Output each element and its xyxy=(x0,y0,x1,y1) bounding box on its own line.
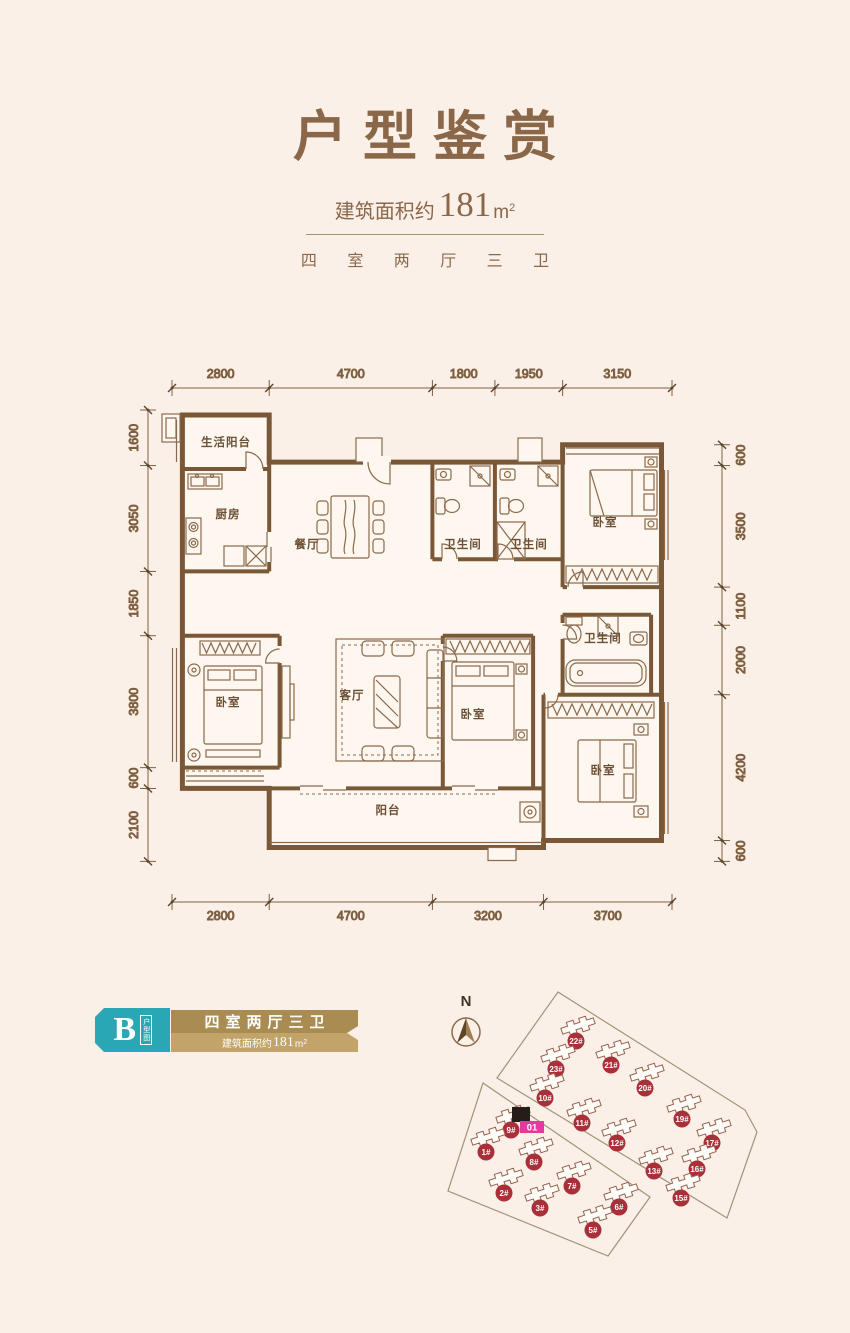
siteplan: N 22#21#23#20#10#11#19#12#17#9#1#8#13#16… xyxy=(430,980,850,1280)
svg-text:4700: 4700 xyxy=(337,367,365,381)
compass-arrow-dark-icon xyxy=(457,1018,466,1043)
svg-text:10#: 10# xyxy=(538,1094,552,1103)
svg-text:600: 600 xyxy=(734,840,748,861)
building-marker: 11# xyxy=(566,1096,603,1131)
svg-text:1950: 1950 xyxy=(515,367,543,381)
svg-text:19#: 19# xyxy=(675,1115,689,1124)
svg-text:卫生间: 卫生间 xyxy=(584,631,622,645)
svg-text:厨房: 厨房 xyxy=(216,507,241,521)
svg-text:1#: 1# xyxy=(482,1148,491,1157)
svg-text:16#: 16# xyxy=(690,1165,704,1174)
svg-text:6#: 6# xyxy=(615,1203,624,1212)
unit-sub-value: 181 xyxy=(273,1036,294,1050)
area-value: 181 xyxy=(439,187,492,222)
page-title: 户型鉴赏 xyxy=(0,0,850,171)
building-marker: 7# xyxy=(556,1159,593,1194)
svg-text:2000: 2000 xyxy=(734,646,748,674)
building-marker: 21# xyxy=(595,1038,632,1073)
svg-text:2100: 2100 xyxy=(127,811,141,839)
svg-text:餐厅: 餐厅 xyxy=(294,537,320,551)
area-unit: m xyxy=(493,203,509,222)
svg-text:卧室: 卧室 xyxy=(591,763,616,777)
unit-sub-unit: m xyxy=(295,1040,303,1050)
layout-text: 四 室 两 厅 三 卫 xyxy=(0,247,850,271)
svg-text:11#: 11# xyxy=(576,1119,589,1128)
svg-text:3150: 3150 xyxy=(603,367,631,381)
svg-text:客厅: 客厅 xyxy=(339,688,365,702)
unit-sub-prefix: 建筑面积约 xyxy=(222,1040,272,1050)
unit-banner: 四室两厅三卫 建筑面积约181m2 xyxy=(171,1010,358,1052)
building-marker: 15# xyxy=(665,1171,702,1206)
svg-text:卧室: 卧室 xyxy=(461,707,486,721)
svg-text:20#: 20# xyxy=(638,1084,652,1093)
unit-tag-vertical: 户型图 xyxy=(140,1015,152,1045)
svg-text:12#: 12# xyxy=(610,1139,624,1148)
building-marker: 8# xyxy=(518,1135,555,1170)
svg-text:3800: 3800 xyxy=(127,688,141,716)
svg-text:1100: 1100 xyxy=(734,593,748,620)
building-marker: 19# xyxy=(666,1092,703,1127)
svg-text:600: 600 xyxy=(127,768,141,789)
compass-arrow-light-icon xyxy=(466,1018,475,1043)
svg-text:9#: 9# xyxy=(507,1126,516,1135)
svg-text:阳台: 阳台 xyxy=(376,803,401,817)
svg-text:15#: 15# xyxy=(674,1194,688,1203)
building-marker: 1# xyxy=(470,1125,507,1160)
building-marker: 16# xyxy=(681,1142,718,1177)
north-label: N xyxy=(461,993,472,1010)
unit-sub-sup: 2 xyxy=(303,1039,307,1046)
building-marker: 20# xyxy=(629,1061,666,1096)
svg-text:23#: 23# xyxy=(549,1065,563,1074)
compass: N xyxy=(452,993,480,1046)
unit-badge: B 户型图 四室两厅三卫 建筑面积约181m2 xyxy=(95,1008,375,1072)
svg-text:4200: 4200 xyxy=(734,754,748,782)
svg-text:3200: 3200 xyxy=(474,909,502,923)
banner-notch-icon xyxy=(347,1026,358,1040)
unit-banner-sub: 建筑面积约181m2 xyxy=(171,1033,358,1052)
svg-text:3#: 3# xyxy=(536,1204,545,1213)
building-marker: 3# xyxy=(524,1181,561,1216)
svg-text:卫生间: 卫生间 xyxy=(510,537,548,551)
svg-text:21#: 21# xyxy=(604,1061,618,1070)
header: 户型鉴赏 建筑面积约181m2 四 室 两 厅 三 卫 xyxy=(0,0,850,271)
building-marker: 5# xyxy=(577,1203,614,1238)
svg-text:22#: 22# xyxy=(569,1037,583,1046)
svg-text:13#: 13# xyxy=(647,1167,661,1176)
svg-text:1850: 1850 xyxy=(127,590,141,618)
svg-text:8#: 8# xyxy=(530,1158,539,1167)
header-divider xyxy=(306,234,544,235)
svg-text:卫生间: 卫生间 xyxy=(444,537,482,551)
area-prefix: 建筑面积约 xyxy=(335,202,435,222)
highlight-tag-label: 01 xyxy=(527,1123,538,1134)
unit-letter-box: B 户型图 xyxy=(95,1008,170,1052)
area-sup: 2 xyxy=(509,203,515,214)
building-marker: 13# xyxy=(638,1144,675,1179)
svg-text:卧室: 卧室 xyxy=(216,695,241,709)
highlighted-building xyxy=(512,1107,530,1122)
building-marker: 12# xyxy=(601,1116,638,1151)
svg-text:3700: 3700 xyxy=(594,909,622,923)
svg-text:2800: 2800 xyxy=(207,909,235,923)
svg-text:卧室: 卧室 xyxy=(593,515,618,529)
unit-letter: B xyxy=(113,1013,136,1047)
svg-text:3500: 3500 xyxy=(734,512,748,540)
page: 户型鉴赏 建筑面积约181m2 四 室 两 厅 三 卫 xyxy=(0,0,850,1333)
floorplan: 生活阳台厨房餐厅卫生间卫生间卧室卫生间卧室客厅卧室卧室阳台 2800470018… xyxy=(0,350,850,960)
svg-text:2800: 2800 xyxy=(207,367,235,381)
svg-text:600: 600 xyxy=(734,445,748,466)
svg-text:2#: 2# xyxy=(500,1189,509,1198)
site-buildings: 22#21#23#20#10#11#19#12#17#9#1#8#13#16#2… xyxy=(470,1014,733,1238)
svg-text:1800: 1800 xyxy=(450,367,478,381)
svg-text:3050: 3050 xyxy=(127,505,141,533)
svg-text:5#: 5# xyxy=(589,1226,598,1235)
unit-banner-title: 四室两厅三卫 xyxy=(171,1010,358,1033)
building-marker: 2# xyxy=(488,1166,525,1201)
area-line: 建筑面积约181m2 xyxy=(0,187,850,222)
svg-text:7#: 7# xyxy=(568,1182,577,1191)
svg-text:1600: 1600 xyxy=(127,424,141,452)
building-marker: 23# xyxy=(540,1042,577,1077)
svg-text:4700: 4700 xyxy=(337,909,365,923)
svg-text:生活阳台: 生活阳台 xyxy=(201,435,251,449)
